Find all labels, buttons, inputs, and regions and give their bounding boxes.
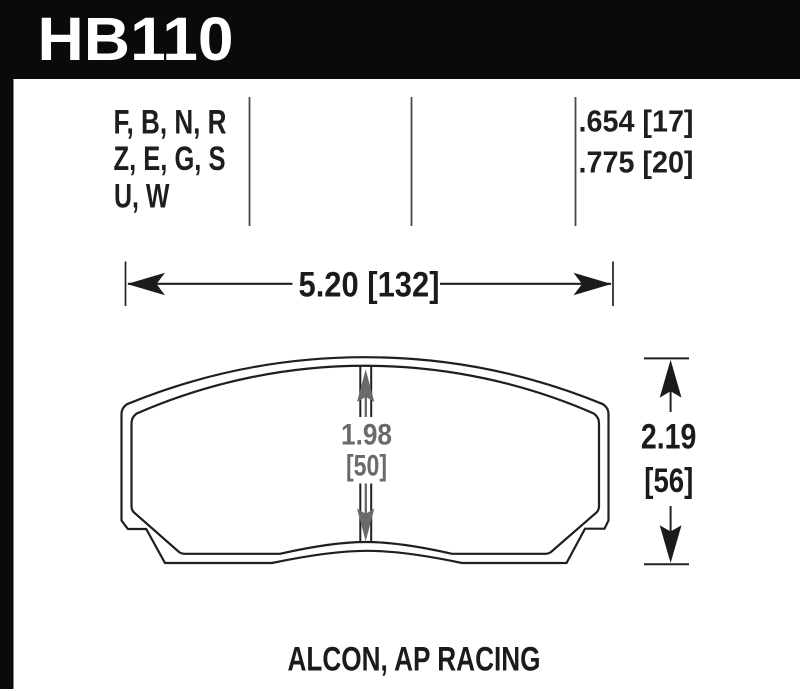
svg-text:[56]: [56] [644, 462, 693, 500]
svg-text:1.98: 1.98 [341, 419, 392, 452]
svg-text:U, W: U, W [114, 178, 170, 216]
svg-text:5.20 [132]: 5.20 [132] [299, 266, 440, 305]
svg-text:[50]: [50] [346, 450, 387, 483]
svg-text:F, B, N, R: F, B, N, R [114, 104, 227, 142]
svg-text:.654 [17]: .654 [17] [579, 104, 694, 139]
svg-text:.775 [20]: .775 [20] [579, 145, 694, 180]
svg-text:ALCON, AP RACING: ALCON, AP RACING [288, 641, 541, 679]
svg-text:HB110: HB110 [38, 5, 234, 73]
svg-text:Z, E, G, S: Z, E, G, S [114, 140, 226, 178]
svg-text:2.19: 2.19 [641, 416, 697, 456]
